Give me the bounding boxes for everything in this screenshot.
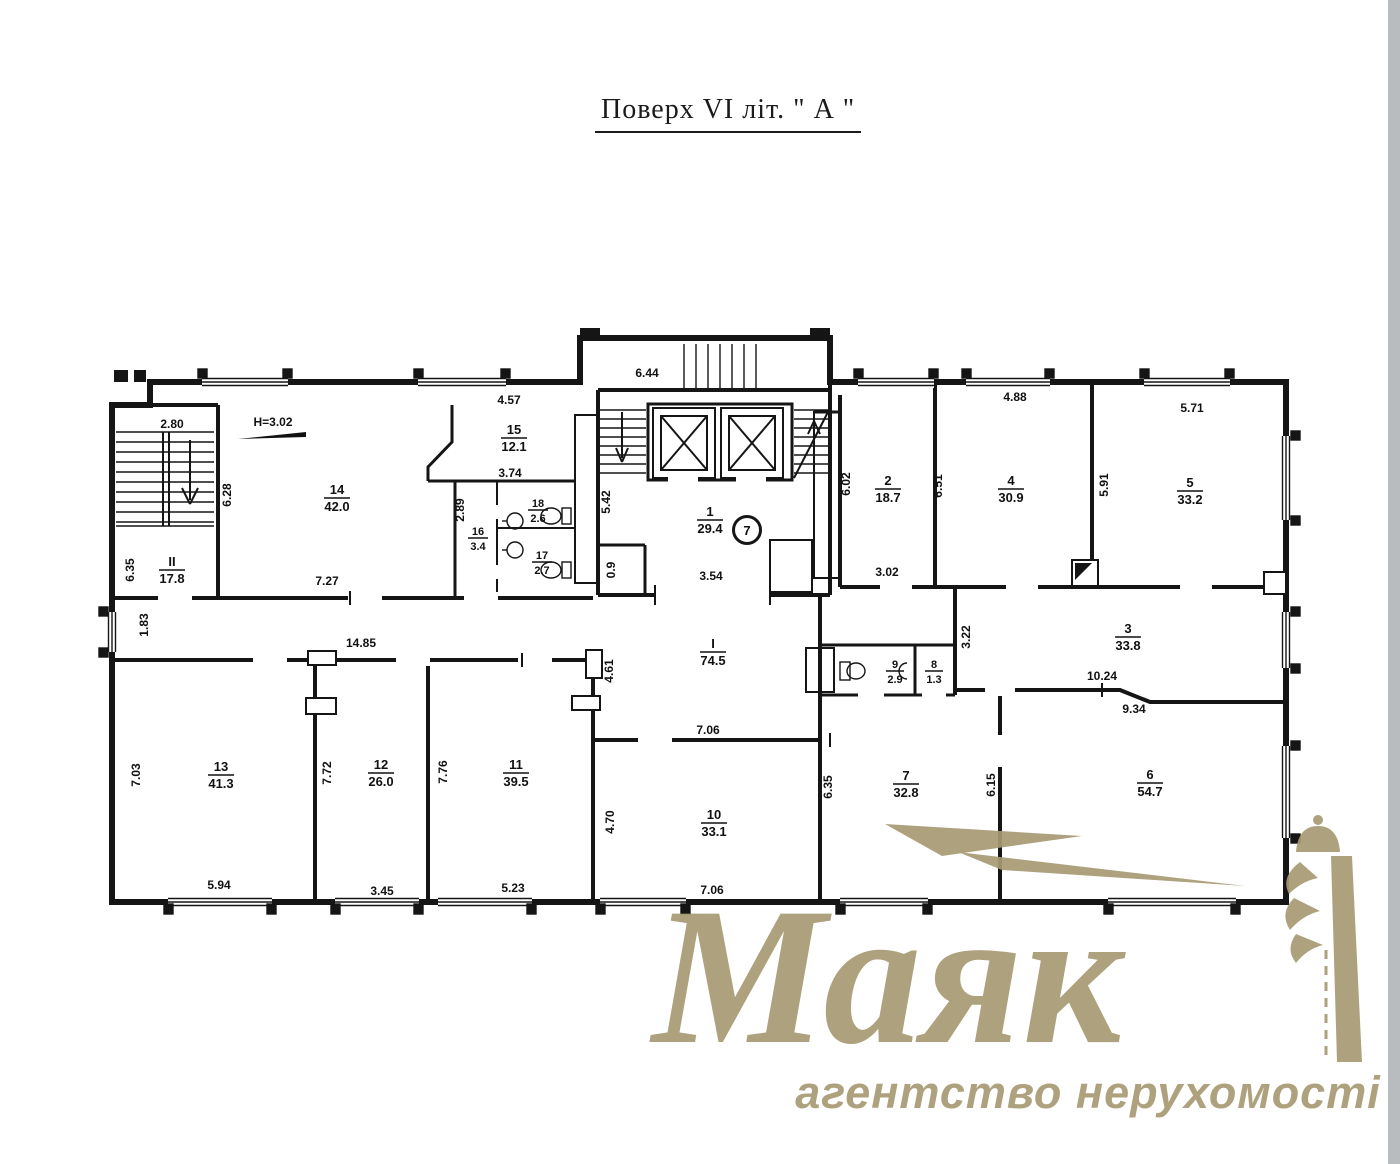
- dim: 6.35: [821, 775, 835, 799]
- room-number: 12: [374, 757, 388, 772]
- dim: 2.89: [453, 498, 467, 522]
- room-area: 26.0: [368, 774, 393, 789]
- room-area: 30.9: [998, 490, 1023, 505]
- room-label: 1226.0: [368, 757, 394, 789]
- room-label: 1341.3: [208, 759, 234, 791]
- elevator-shafts: [648, 404, 792, 483]
- toilet-icon: [840, 662, 865, 680]
- room-label: 654.7: [1137, 767, 1163, 799]
- room-number: 3: [1124, 621, 1131, 636]
- staircase-top-left: [116, 432, 214, 526]
- room-area: 54.7: [1137, 784, 1162, 799]
- room-label: 81.3: [925, 659, 943, 686]
- dim: 3.22: [959, 625, 973, 649]
- dimension-labels: 2.80 H=3.02 6.28 6.35 7.27 4.57 3.74 2.8…: [123, 366, 1204, 898]
- room-area: 33.2: [1177, 492, 1202, 507]
- room-label: 333.8: [1115, 621, 1141, 653]
- room-label: I74.5: [700, 636, 726, 668]
- agency-watermark: Маяк агентство нерухомості: [649, 815, 1381, 1118]
- room-area: 12.1: [501, 439, 526, 454]
- room-number: 1: [706, 504, 713, 519]
- dim: 6.35: [123, 558, 137, 582]
- room-label: 1442.0: [324, 482, 350, 514]
- watermark-tagline: агентство нерухомості: [795, 1067, 1381, 1118]
- room-number: 9: [892, 659, 898, 671]
- room-number: 14: [330, 482, 345, 497]
- sink-icon: [502, 542, 523, 558]
- dim: 5.71: [1180, 401, 1204, 415]
- dim: 6.02: [839, 472, 853, 496]
- elevator-cab-icon: [721, 408, 783, 483]
- room-number: 7: [902, 768, 909, 783]
- dim: 4.70: [603, 810, 617, 834]
- dim: 3.45: [370, 884, 394, 898]
- room-area: 2.9: [887, 674, 902, 686]
- dim: 6.15: [984, 773, 998, 797]
- dim: 5.42: [599, 490, 613, 514]
- room-number: 13: [214, 759, 228, 774]
- watermark-brand: Маяк: [649, 868, 1126, 1085]
- dim: 3.74: [498, 466, 522, 480]
- dim: 5.23: [501, 881, 525, 895]
- room-label: 533.2: [1177, 475, 1203, 507]
- room-number: 10: [707, 807, 721, 822]
- dim: 6.28: [220, 483, 234, 507]
- room-area: 42.0: [324, 499, 349, 514]
- floor-plan-drawing: II17.8 1442.0 1512.1 163.4 182.6 172.7 1…: [0, 0, 1400, 1164]
- room-number: 2: [884, 473, 891, 488]
- dim: 10.24: [1087, 669, 1117, 683]
- room-number: 18: [532, 498, 544, 510]
- scanned-floor-plan-page: Поверх VI літ. " А ": [0, 0, 1400, 1164]
- room-label: 92.9: [886, 659, 904, 686]
- height-note-arrow-icon: [238, 432, 306, 439]
- room-label: 172.7: [532, 550, 552, 577]
- room-number: 5: [1186, 475, 1193, 490]
- dim: 7.27: [315, 574, 339, 588]
- room-area: 32.8: [893, 785, 918, 800]
- room-number: 15: [507, 422, 521, 437]
- dim: 3.02: [875, 565, 899, 579]
- room-label: 1512.1: [501, 422, 527, 454]
- room-number: 17: [536, 550, 548, 562]
- room-number: 11: [509, 757, 523, 772]
- dim: 7.03: [129, 763, 143, 787]
- room-label: 1139.5: [503, 757, 529, 789]
- room-area: 3.4: [470, 541, 486, 553]
- dim: 6.51: [931, 474, 945, 498]
- entry-number: 7: [743, 523, 750, 538]
- room-number: 6: [1146, 767, 1153, 782]
- dim: 4.57: [497, 393, 521, 407]
- room-area: 33.8: [1115, 638, 1140, 653]
- dim: 5.91: [1097, 473, 1111, 497]
- room-label: 182.6: [528, 498, 548, 525]
- dim: 14.85: [346, 636, 376, 650]
- room-number: II: [168, 554, 175, 569]
- elevator-lobby: [600, 344, 828, 483]
- dim: 7.76: [436, 760, 450, 784]
- room-area: 17.8: [159, 571, 184, 586]
- room-label: II17.8: [159, 554, 185, 586]
- dim: 3.54: [699, 569, 723, 583]
- dim: 9.34: [1122, 702, 1146, 716]
- scan-page-edge: [1388, 0, 1400, 1164]
- room-area: 29.4: [697, 521, 723, 536]
- room-area: 41.3: [208, 776, 233, 791]
- stairs-left: [600, 410, 646, 473]
- room-area: 2.6: [530, 513, 545, 525]
- dim: 0.9: [604, 561, 618, 578]
- room-number: 16: [472, 526, 484, 538]
- room-area: 74.5: [700, 653, 725, 668]
- room-label: 1033.1: [701, 807, 727, 839]
- stairs-right: [794, 410, 828, 478]
- dim: 4.61: [602, 659, 616, 683]
- sink-icon: [502, 513, 523, 529]
- room-number: 4: [1007, 473, 1015, 488]
- dim: 6.44: [635, 366, 659, 380]
- dim-stair-width: 2.80: [160, 417, 184, 431]
- ceiling-height-note: H=3.02: [253, 415, 292, 429]
- dim: 4.88: [1003, 390, 1027, 404]
- dim: 1.83: [137, 613, 151, 637]
- room-area: 39.5: [503, 774, 528, 789]
- room-label: 732.8: [893, 768, 919, 800]
- elevator-cab-icon: [653, 408, 715, 483]
- room-label: 218.7: [875, 473, 901, 505]
- room-number: I: [711, 636, 715, 651]
- dim: 7.72: [320, 761, 334, 785]
- room-area: 18.7: [875, 490, 900, 505]
- room-area: 2.7: [534, 565, 549, 577]
- room-label: 430.9: [998, 473, 1024, 505]
- room-area: 33.1: [701, 824, 726, 839]
- room-label: 163.4: [468, 526, 488, 553]
- room-number: 8: [931, 659, 937, 671]
- dim: 7.06: [696, 723, 720, 737]
- room-area: 1.3: [926, 674, 941, 686]
- entry-number-badge: 7: [734, 517, 761, 544]
- vestibule-steps: [684, 344, 756, 388]
- dim: 5.94: [207, 878, 231, 892]
- room-label: 129.4: [697, 504, 723, 536]
